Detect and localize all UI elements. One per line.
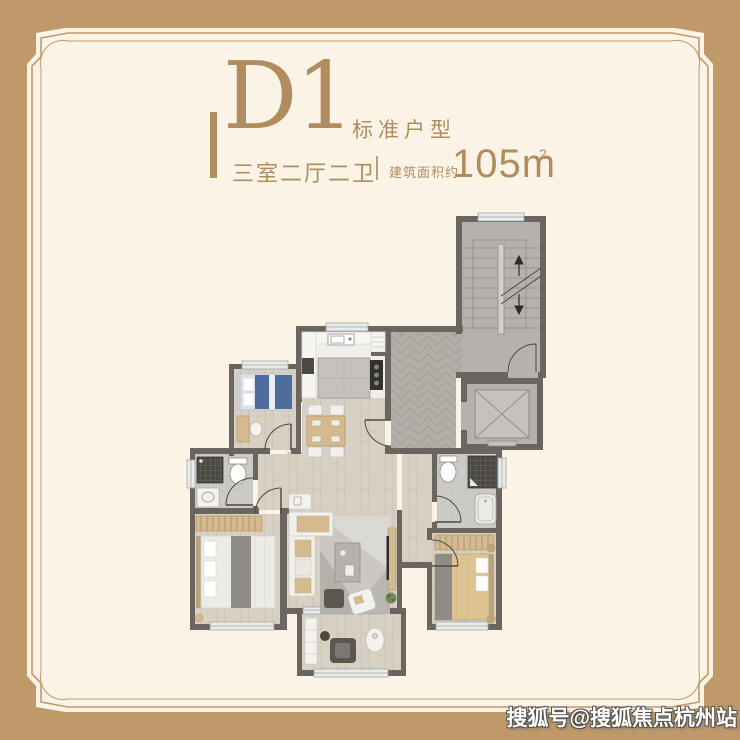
inner-corridor-floor: [258, 454, 287, 510]
dining-chair: [330, 405, 344, 415]
watermark: 搜狐号@搜狐焦点杭州站: [507, 702, 737, 732]
corridor-core-opening: [456, 334, 462, 372]
floorplan-drawing: [185, 210, 555, 685]
area-exponent: 2: [539, 146, 547, 162]
rooms-summary: 三室二厅二卫: [232, 156, 376, 188]
balcony-window: [314, 669, 388, 677]
floorplan-page: D1 标准户型 三室二厅二卫 建筑面积约 105m 2: [0, 0, 740, 740]
ensuite-toilet: [440, 456, 457, 482]
kitchen: [302, 332, 385, 398]
second-bedroom-window: [436, 622, 488, 630]
master-bed: [196, 536, 275, 608]
balcony-shelf: [305, 618, 317, 664]
stair-window: [478, 213, 524, 221]
master-wardrobe: [196, 516, 262, 531]
hallway-floor: [402, 454, 432, 568]
living-armchair: [324, 589, 344, 608]
elevator-door-opening: [461, 402, 467, 430]
dining-chair: [330, 447, 344, 457]
ensuite-bath-window: [498, 458, 506, 488]
ensuite-shower: [468, 456, 496, 488]
entry-corridor-floor: [391, 332, 456, 448]
subtitle-divider: [376, 156, 378, 180]
balcony-side-table: [366, 628, 384, 652]
dining-chair: [308, 447, 322, 457]
bathtub: [475, 494, 496, 524]
stove: [370, 360, 383, 390]
second-bedroom: [435, 535, 496, 624]
plant: [386, 593, 397, 604]
tv-console: [387, 528, 397, 590]
desk-chair: [250, 422, 262, 436]
kitchen-sink: [328, 334, 354, 345]
kitchen-window: [326, 323, 368, 331]
nightstand: [195, 614, 203, 622]
stair-stringer: [498, 244, 504, 334]
elevator-details: [475, 390, 529, 446]
coffee-table: [335, 543, 360, 582]
balcony-armchair: [330, 638, 356, 663]
pantry: [371, 332, 385, 356]
toilet: [229, 458, 247, 484]
kitchen-appliance: [302, 358, 314, 374]
lobby-door-opening: [508, 372, 538, 378]
area-label: 建筑面积约: [389, 162, 459, 181]
nightstand: [487, 615, 496, 624]
tv-screen: [387, 536, 390, 580]
desk: [237, 416, 249, 442]
elevator-counterweight: [488, 441, 516, 446]
unit-type-label: 标准户型: [352, 114, 456, 144]
small-bedroom-window: [242, 361, 288, 369]
balcony-pouf: [320, 631, 330, 641]
nightstand: [487, 544, 496, 553]
sofa-side-table: [289, 494, 311, 509]
vanity: [197, 488, 219, 507]
shower: [197, 457, 223, 483]
unit-code: D1: [223, 50, 353, 143]
small-bed: [237, 374, 293, 410]
title-accent-bar: [210, 112, 217, 178]
guest-bath-window: [187, 460, 195, 488]
second-bed: [435, 554, 494, 620]
dining-chair: [308, 405, 322, 415]
master-window: [210, 622, 274, 630]
